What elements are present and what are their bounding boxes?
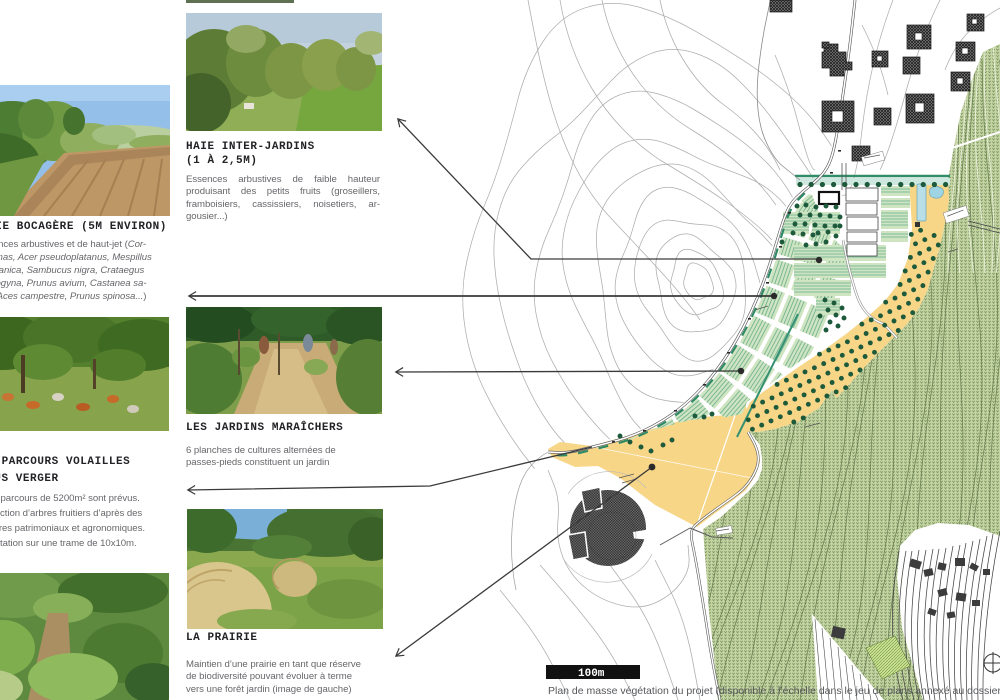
svg-text:100m: 100m (578, 668, 605, 680)
